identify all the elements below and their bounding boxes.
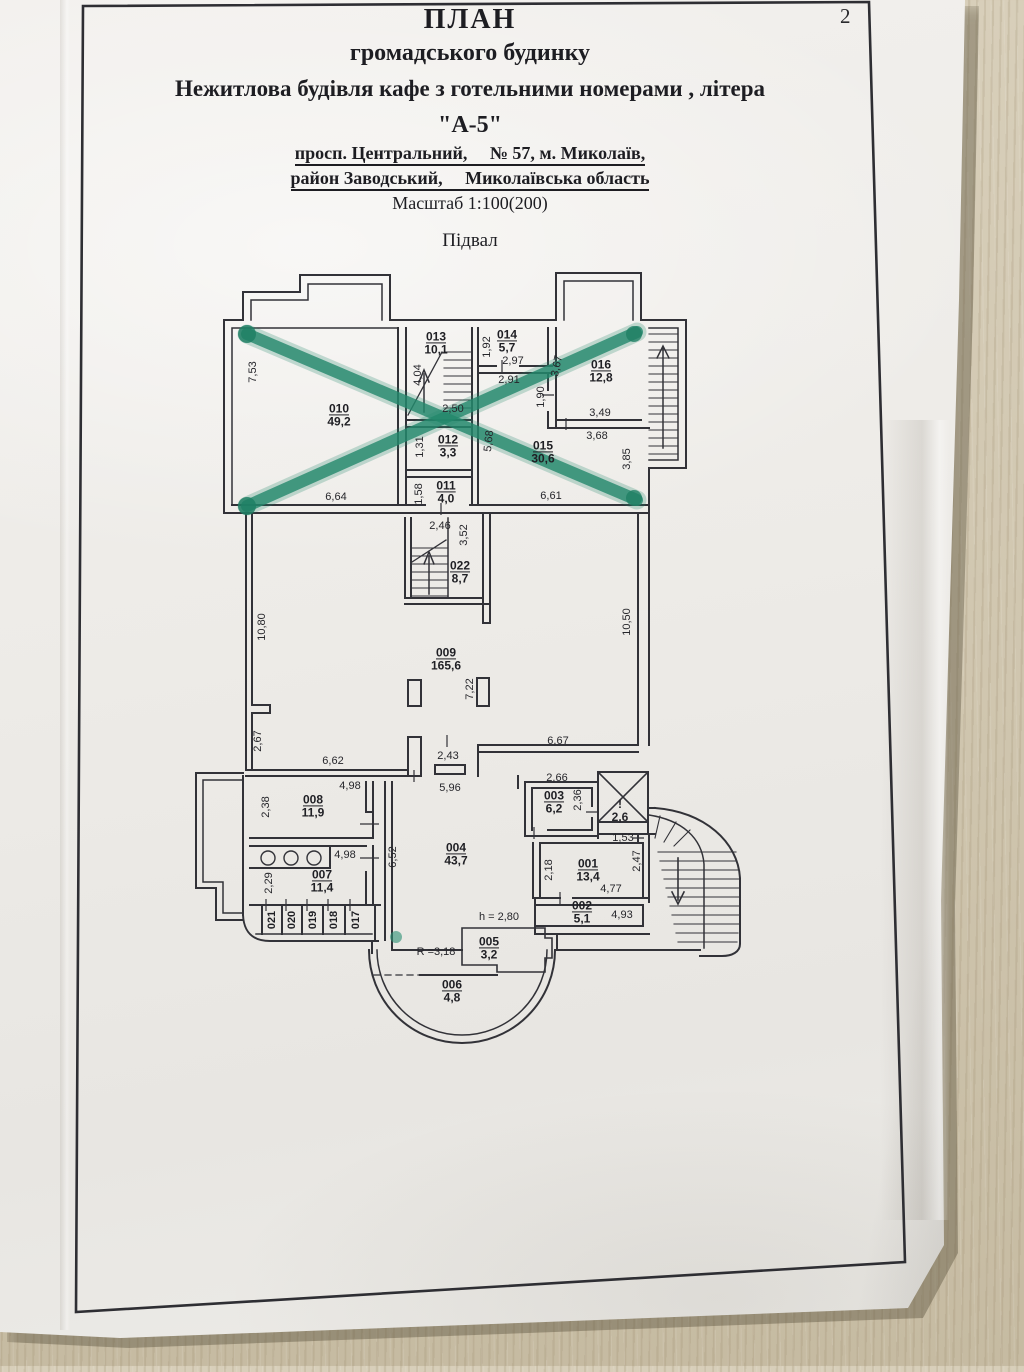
address-line-2: район Заводський, Миколаївська область <box>60 168 880 189</box>
dim-label: 6,64 <box>325 491 346 503</box>
scale-label: Масштаб 1:100(200) <box>60 193 880 214</box>
dim-label: R =3,18 <box>417 946 456 958</box>
title-letter: "А-5" <box>60 112 880 139</box>
dim-label: 5,68 <box>482 430 496 453</box>
cabin-label: 017 <box>350 911 362 929</box>
dim-label: 2,66 <box>546 772 567 784</box>
dim-label: 1,31 <box>414 436 426 457</box>
dim-label: 4,04 <box>412 364 424 385</box>
dim-label: 2,91 <box>498 374 519 386</box>
room-label: 00711,4 <box>311 868 334 893</box>
cabin-label: 019 <box>307 911 319 929</box>
cabin-label: 018 <box>328 911 340 929</box>
dim-label: 2,47 <box>631 850 643 871</box>
title-plan: ПЛАН <box>60 4 880 36</box>
dim-label: 4,98 <box>339 780 360 792</box>
cabin-label: 020 <box>286 911 298 929</box>
room-label: 0064,8 <box>442 978 462 1003</box>
room-label: 00811,9 <box>302 793 325 818</box>
room-label: 01310,1 <box>424 330 447 355</box>
page-number: 2 <box>840 4 851 29</box>
dim-label: 7,22 <box>464 678 476 699</box>
dim-label: 2,43 <box>437 750 458 762</box>
plan-labels: 01049,201310,10145,701612,80123,30114,00… <box>190 250 750 1060</box>
room-label: 0123,3 <box>438 433 458 458</box>
dim-label: 4,93 <box>611 909 632 921</box>
dim-label: 10,50 <box>621 608 633 636</box>
room-label: 00113,4 <box>576 857 599 882</box>
dim-label: 3,67 <box>549 354 565 377</box>
dim-label: 4,98 <box>334 849 355 861</box>
dim-label: 2,38 <box>260 796 272 817</box>
dim-label: 3,52 <box>458 524 470 545</box>
dim-label: 6,52 <box>387 846 399 867</box>
room-label: 01530,6 <box>531 439 554 464</box>
dim-label: 4,77 <box>600 883 621 895</box>
dim-label: ! <box>618 797 622 811</box>
floor-label: Підвал <box>60 230 880 252</box>
dim-label: h = 2,80 <box>479 911 519 923</box>
dim-label: 10,80 <box>256 613 268 641</box>
room-label: 009165,6 <box>431 646 461 671</box>
dim-label: 2,6 <box>612 810 629 824</box>
room-label: 0145,7 <box>497 328 517 353</box>
dim-label: 2,18 <box>543 859 555 880</box>
dim-label: 3,85 <box>621 448 633 469</box>
cabin-label: 021 <box>266 911 278 929</box>
address-line-1: просп. Центральний, № 57, м. Миколаїв, <box>60 143 880 164</box>
photo-scene: { "page": {"number": "2"}, "header": { "… <box>0 0 1024 1366</box>
room-label: 00443,7 <box>444 841 467 866</box>
dim-label: 1,90 <box>535 386 547 407</box>
room-label: 0228,7 <box>450 559 470 584</box>
room-label: 0025,1 <box>572 899 592 924</box>
title-description: Нежитлова будівля кафе з готельними номе… <box>60 76 880 102</box>
dim-label: 6,62 <box>322 755 343 767</box>
dim-label: 2,97 <box>502 355 523 367</box>
dim-label: 7,53 <box>247 361 259 382</box>
room-label: 0114,0 <box>436 479 455 504</box>
dim-label: 6,67 <box>547 735 568 747</box>
dim-label: 1,92 <box>481 336 493 357</box>
room-label: 0053,2 <box>479 935 499 960</box>
floor-plan: 01049,201310,10145,701612,80123,30114,00… <box>190 250 750 1060</box>
dim-label: 5,96 <box>439 782 460 794</box>
title-building: громадського будинку <box>60 40 880 67</box>
dim-label: 3,68 <box>586 430 607 442</box>
dim-label: 1,53 <box>612 832 633 844</box>
room-label: 0036,2 <box>544 789 564 814</box>
dim-label: 2,50 <box>442 403 463 415</box>
room-label: 01049,2 <box>327 402 350 427</box>
room-label: 01612,8 <box>589 358 612 383</box>
dim-label: 2,36 <box>572 789 584 810</box>
dim-label: 2,29 <box>263 872 275 893</box>
dim-label: 1,58 <box>413 483 425 504</box>
dim-label: 6,61 <box>540 490 561 502</box>
dim-label: 2,67 <box>252 730 264 751</box>
dim-label: 2,46 <box>429 520 450 532</box>
dim-label: 3,49 <box>589 407 610 419</box>
